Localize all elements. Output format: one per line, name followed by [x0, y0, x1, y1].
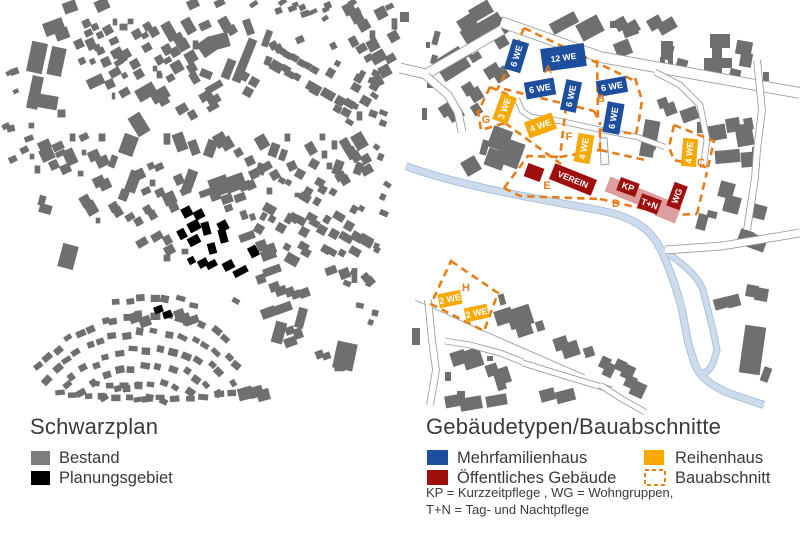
svg-text:Bestand: Bestand: [59, 449, 120, 467]
svg-text:D: D: [612, 198, 620, 210]
svg-text:Mehrfamilienhaus: Mehrfamilienhaus: [457, 449, 587, 467]
svg-text:Schwarzplan: Schwarzplan: [30, 414, 158, 439]
svg-text:A: A: [544, 64, 552, 76]
svg-text:Planungsgebiet: Planungsgebiet: [59, 469, 173, 487]
svg-text:C: C: [697, 157, 705, 169]
svg-text:E: E: [543, 180, 550, 192]
svg-text:T+N = Tag- und Nachtpflege: T+N = Tag- und Nachtpflege: [426, 502, 589, 517]
svg-text:Gebäudetypen/Bauabschnitte: Gebäudetypen/Bauabschnitte: [426, 414, 721, 439]
svg-text:H: H: [462, 282, 470, 294]
svg-text:KP = Kurzzeitpflege , WG = Woh: KP = Kurzzeitpflege , WG = Wohngruppen,: [426, 485, 673, 500]
svg-text:4 WE: 4 WE: [684, 141, 696, 164]
svg-text:B: B: [597, 93, 605, 105]
svg-text:Reihenhaus: Reihenhaus: [675, 449, 763, 467]
svg-text:Bauabschnitt: Bauabschnitt: [675, 469, 771, 487]
svg-text:F: F: [566, 131, 573, 143]
svg-text:G: G: [482, 114, 491, 126]
